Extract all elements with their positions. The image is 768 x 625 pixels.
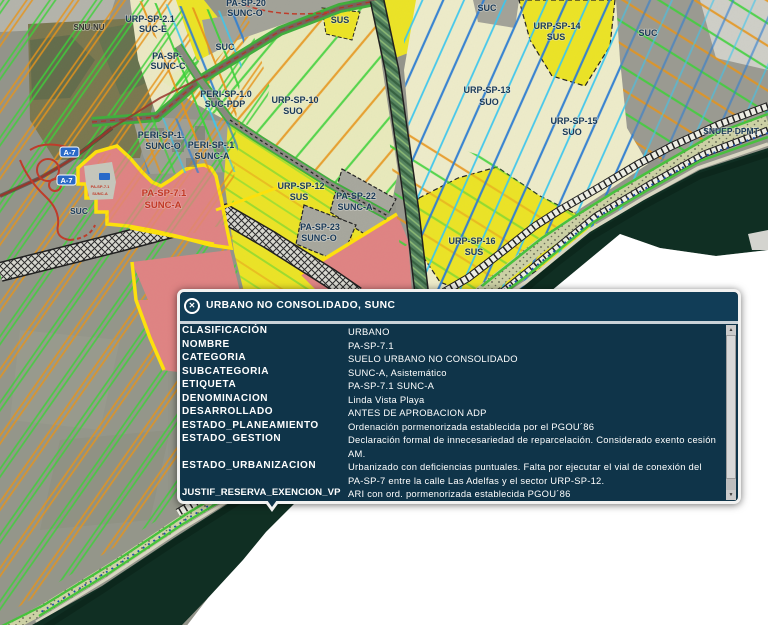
svg-text:SUNC-A: SUNC-A	[195, 151, 230, 161]
svg-text:PA-SP-7.1: PA-SP-7.1	[91, 184, 111, 189]
svg-text:SUO: SUO	[479, 97, 499, 107]
svg-text:PERI-SP-.1: PERI-SP-.1	[188, 140, 235, 150]
svg-text:SUO: SUO	[562, 127, 582, 137]
svg-text:SUNC-A: SUNC-A	[92, 191, 108, 196]
svg-text:URP-SP-12: URP-SP-12	[277, 181, 324, 191]
svg-text:URP-SP-16: URP-SP-16	[448, 236, 495, 246]
svg-text:SUS: SUS	[465, 247, 484, 257]
svg-text:SUC: SUC	[70, 206, 88, 216]
svg-text:PA-SP-: PA-SP-	[152, 51, 182, 61]
svg-text:URP-SP-13: URP-SP-13	[463, 85, 510, 95]
svg-text:SUNC-O: SUNC-O	[227, 8, 263, 18]
svg-text:SUC: SUC	[215, 42, 235, 52]
svg-text:PERI-SP-1.: PERI-SP-1.	[138, 130, 185, 140]
svg-text:SUC: SUC	[477, 3, 497, 13]
svg-text:SNU-NU: SNU-NU	[73, 23, 104, 32]
svg-text:SUC: SUC	[638, 28, 658, 38]
svg-text:SUS: SUS	[290, 192, 309, 202]
svg-text:URP-SP-2.1: URP-SP-2.1	[125, 14, 175, 24]
svg-text:URP-SP-10: URP-SP-10	[271, 95, 318, 105]
svg-text:SUNC-A: SUNC-A	[338, 202, 373, 212]
svg-text:PA-SP-7.1: PA-SP-7.1	[142, 188, 187, 199]
svg-text:URP-SP-14: URP-SP-14	[533, 21, 580, 31]
svg-text:SUS: SUS	[331, 15, 350, 25]
svg-text:PERI-SP-1.0: PERI-SP-1.0	[200, 89, 252, 99]
svg-text:SUNC-O: SUNC-O	[145, 141, 181, 151]
svg-text:SUC-PDP: SUC-PDP	[205, 99, 246, 109]
svg-text:URP-SP-15: URP-SP-15	[550, 116, 597, 126]
svg-text:SUNC-C: SUNC-C	[151, 61, 186, 71]
svg-text:PA-SP-23: PA-SP-23	[300, 222, 340, 232]
svg-text:SUNC-A: SUNC-A	[145, 200, 182, 211]
svg-text:SUO: SUO	[283, 106, 303, 116]
svg-text:A-7: A-7	[63, 148, 75, 157]
svg-text:SUC-E: SUC-E	[139, 24, 167, 34]
svg-text:A-7: A-7	[60, 176, 72, 185]
svg-text:SNUEP DPMT: SNUEP DPMT	[703, 126, 759, 136]
svg-text:PA-SP-22: PA-SP-22	[336, 191, 376, 201]
svg-text:PA-SP-20: PA-SP-20	[226, 0, 266, 8]
svg-text:SUS: SUS	[547, 32, 566, 42]
svg-text:SUNC-O: SUNC-O	[301, 233, 337, 243]
